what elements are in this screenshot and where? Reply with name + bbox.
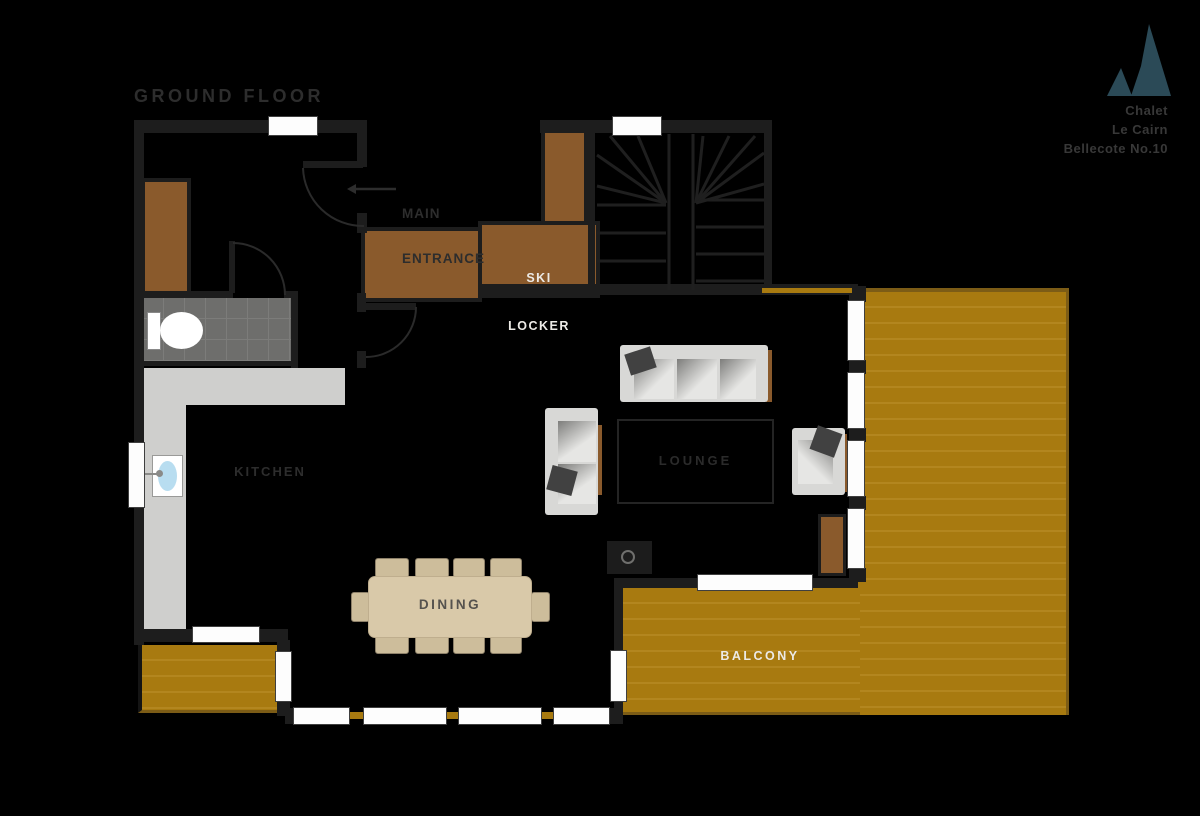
log-burner-flue [621,550,635,564]
kitchen-door-arc [366,307,416,357]
wall [764,120,772,295]
balcony-deck-right [858,288,1069,715]
wall [357,293,366,312]
window [847,300,865,361]
entrance-wardrobe [141,178,191,295]
wall [357,120,367,167]
main-entrance-label-line2: ENTRANCE [402,251,485,266]
wall-tie [350,712,363,719]
dining-chair [490,558,522,578]
entrance-door-arc [303,168,364,226]
toilet-bowl [160,312,203,349]
wall [357,351,366,368]
window [612,116,662,136]
window [847,508,865,569]
logo-line-2: Le Cairn [1008,120,1168,139]
window [847,372,865,429]
balcony-deck-small [138,645,285,713]
lounge-side-cabinet [818,514,846,576]
wall-tie [762,288,852,293]
window [363,707,447,725]
floor-plan: GROUND FLOOR Chalet Le Cairn Bellecote N… [0,0,1200,816]
sink-faucet-knob [156,470,163,477]
wall [588,127,595,292]
sofa-seat [558,421,596,462]
ski-locker-label: SKI LOCKER [478,238,600,366]
wall [138,291,233,298]
wall [849,568,866,582]
ski-cupboard-tall [541,124,588,228]
lounge-label: LOUNGE [617,453,774,468]
dining-chair [453,558,485,578]
sofa-seat [677,359,717,399]
window [847,440,865,497]
dining-chair [375,558,409,578]
kitchen-counter-left [143,368,186,636]
window [458,707,542,725]
main-entrance-arrowhead [347,184,356,194]
chalet-logo-icon [1105,22,1173,98]
kitchen-door-leaf [366,303,416,310]
window [275,651,292,702]
ski-locker-label-line2: LOCKER [478,318,600,334]
page-title: GROUND FLOOR [134,86,324,107]
window [697,574,813,591]
dining-chair [531,592,550,622]
window [192,626,260,643]
logo-line-1: Chalet [1008,101,1168,120]
toilet-tank [147,312,161,350]
main-entrance-label: MAIN ENTRANCE [402,176,485,296]
window [553,707,610,725]
bathroom-door-arc [233,243,285,295]
wall [357,213,367,233]
balcony-label: BALCONY [690,649,830,663]
window [610,650,627,702]
dining-label: DINING [368,597,532,612]
window [268,116,318,136]
bathroom-door-leaf [229,241,235,293]
entrance-door-leaf [303,161,363,168]
window [128,442,145,508]
wall [291,291,298,368]
wall [134,120,144,645]
wall [134,629,192,642]
wall-tie [542,712,553,719]
dining-chair [415,558,449,578]
wall [142,120,367,133]
logo-line-3: Bellecote No.10 [1008,139,1168,158]
main-entrance-label-line1: MAIN [402,206,485,221]
window [293,707,350,725]
kitchen-label: KITCHEN [225,464,315,479]
wall [138,361,298,366]
sofa-seat [720,359,756,399]
logo-text: Chalet Le Cairn Bellecote No.10 [1008,101,1168,158]
wall-tie [447,712,458,719]
staircase [597,134,764,290]
